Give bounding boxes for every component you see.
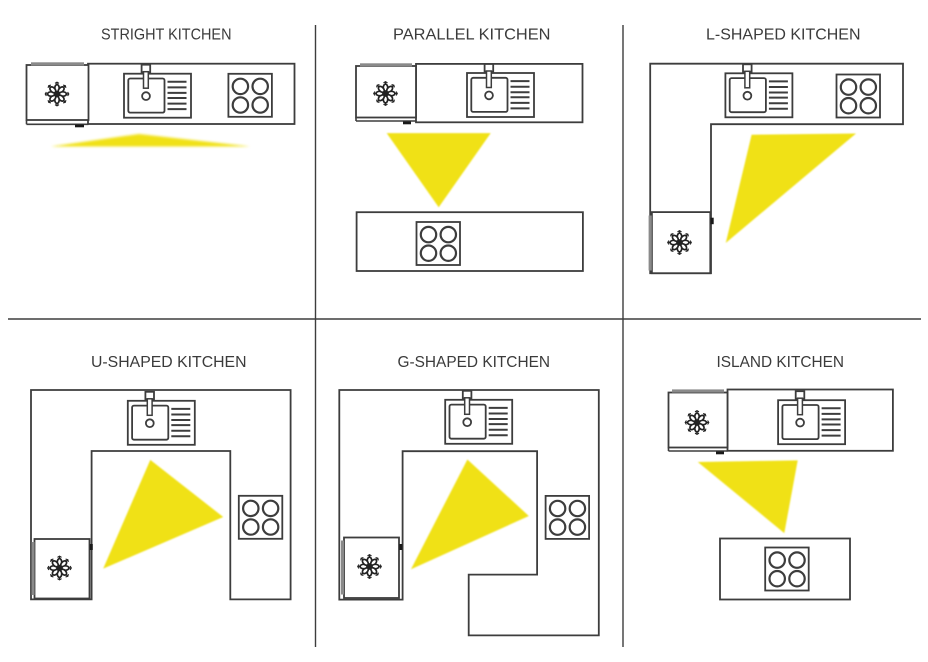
svg-text:STRIGHT KITCHEN: STRIGHT KITCHEN bbox=[101, 27, 232, 44]
svg-text:L-SHAPED KITCHEN: L-SHAPED KITCHEN bbox=[706, 27, 861, 44]
svg-text:G-SHAPED KITCHEN: G-SHAPED KITCHEN bbox=[398, 354, 551, 371]
svg-text:U-SHAPED KITCHEN: U-SHAPED KITCHEN bbox=[91, 354, 247, 371]
svg-text:PARALLEL KITCHEN: PARALLEL KITCHEN bbox=[393, 27, 551, 44]
svg-text:ISLAND KITCHEN: ISLAND KITCHEN bbox=[717, 354, 845, 371]
